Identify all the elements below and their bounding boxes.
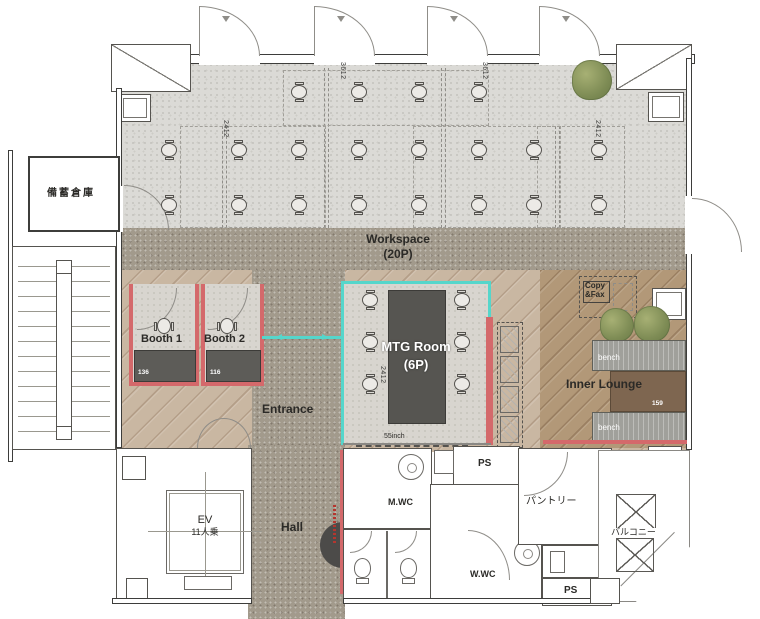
entrance-label: Entrance [262, 403, 313, 416]
mtg-capacity-label: (6P) [360, 358, 472, 372]
corner-eave [616, 44, 692, 90]
ev-label: EV [166, 514, 244, 526]
locker-unit [500, 326, 519, 353]
door-swing-marker-icon [337, 16, 345, 22]
mwc-label: M.WC [388, 498, 413, 508]
wwc-label: W.WC [470, 570, 496, 580]
mtg-room-label: MTG Room [360, 340, 472, 354]
locker-unit [500, 356, 519, 383]
wall-column [590, 578, 620, 604]
locker-unit [500, 416, 519, 443]
storage-label: 備蓄倉庫 [47, 188, 95, 199]
chair-icon [591, 143, 607, 157]
door-swing-marker-icon [562, 16, 570, 22]
booth-desk [206, 350, 261, 382]
chair-icon [526, 143, 542, 157]
chair-icon [471, 85, 487, 99]
dimension-label: 3612 [481, 62, 488, 80]
bottom-wall [112, 598, 252, 604]
chair-icon [220, 318, 234, 334]
chair-icon [411, 143, 427, 157]
chair-icon [454, 293, 470, 307]
door-note-text [333, 505, 336, 545]
bench-top-label: bench [598, 354, 620, 363]
chair-icon [362, 293, 378, 307]
locker-unit [500, 386, 519, 413]
stair-rail-post [56, 426, 72, 440]
dimension-label: 2412 [222, 120, 229, 138]
balcony-hatch [616, 538, 654, 572]
glass-partition [341, 281, 344, 445]
stair-rail [56, 260, 72, 440]
chair-icon [291, 198, 307, 212]
door-arc-icon [427, 6, 488, 56]
chair-icon [231, 198, 247, 212]
left-wall [116, 88, 122, 448]
wall-column [122, 456, 146, 480]
sink-icon [398, 454, 424, 480]
ps-top-label: PS [478, 458, 491, 469]
door-swing-marker-icon [450, 16, 458, 22]
chair-icon [362, 377, 378, 391]
lounge-number: 159 [652, 400, 663, 407]
dimension-label: 2412 [594, 120, 601, 138]
copy-fax-label-2: &Fax [585, 291, 605, 300]
inner-lounge-label: Inner Lounge [566, 378, 642, 391]
plant-icon [572, 60, 612, 100]
plant-icon [600, 308, 634, 342]
ev-capacity-label: 11人乗 [166, 528, 244, 538]
workspace-capacity-label: (20P) [340, 248, 456, 261]
chair-icon [471, 198, 487, 212]
plant-icon [634, 306, 670, 342]
door-swing-marker-icon [222, 16, 230, 22]
display-size-label: 55inch [384, 433, 405, 441]
wall-display [356, 445, 468, 447]
chair-icon [411, 85, 427, 99]
desk-island [283, 70, 489, 126]
chair-icon [291, 143, 307, 157]
door-arc-icon [539, 6, 600, 56]
chair-icon [351, 85, 367, 99]
arrow-icon [322, 334, 328, 340]
chair-icon [157, 318, 171, 334]
chair-icon [291, 85, 307, 99]
ps-bottom-label: PS [564, 585, 577, 596]
glass-partition [488, 281, 491, 320]
chair-icon [231, 143, 247, 157]
service-fixture [550, 551, 565, 573]
desk-island [537, 126, 625, 228]
chair-icon [591, 198, 607, 212]
corner-eave [111, 44, 191, 92]
chair-icon [411, 198, 427, 212]
chair-icon [454, 377, 470, 391]
ev-pit [184, 576, 232, 590]
stall-divider [386, 531, 388, 601]
arrow-icon [276, 334, 282, 340]
stair-rail-post [56, 260, 72, 274]
duct-box [434, 450, 454, 474]
door-arc-icon [314, 6, 375, 56]
dimension-label: 2412 [379, 366, 386, 384]
bench-bottom-label: bench [598, 424, 620, 433]
dimension-label: 3612 [339, 62, 346, 80]
chair-icon [161, 198, 177, 212]
chair-icon [471, 143, 487, 157]
toilet-icon [354, 558, 371, 578]
accent-wall [543, 440, 687, 444]
chair-icon [351, 198, 367, 212]
glass-partition [341, 281, 491, 284]
wall-column [126, 578, 148, 600]
door-arc-icon [692, 198, 742, 252]
balcony-hatch [616, 494, 656, 530]
entrance-corridor [252, 270, 345, 445]
pantry-label: パントリー [526, 496, 577, 507]
bottom-wall [343, 598, 614, 604]
booth-desk [134, 350, 196, 382]
right-wall [686, 58, 692, 450]
workspace-label: Workspace [340, 233, 456, 246]
booth-2-label: Booth 2 [204, 333, 245, 345]
booth-1-number: 136 [138, 369, 149, 376]
chair-icon [161, 143, 177, 157]
chair-icon [526, 198, 542, 212]
floor-plan: 備蓄倉庫 3612 3612 2412 2412 Workspace (20P) [0, 0, 760, 619]
booth-2-number: 116 [210, 369, 221, 376]
desk-island [180, 126, 326, 228]
door-arc-icon [199, 6, 260, 56]
balcony-label: バルコニー [610, 528, 657, 538]
wall-column [648, 92, 684, 122]
glass-partition [262, 336, 342, 339]
hall-label: Hall [281, 521, 303, 534]
toilet-icon [400, 558, 417, 578]
corner-column [119, 94, 151, 122]
chair-icon [351, 143, 367, 157]
accent-wall [486, 317, 493, 445]
copy-fax-tray [613, 283, 633, 311]
booth-1-label: Booth 1 [141, 333, 182, 345]
